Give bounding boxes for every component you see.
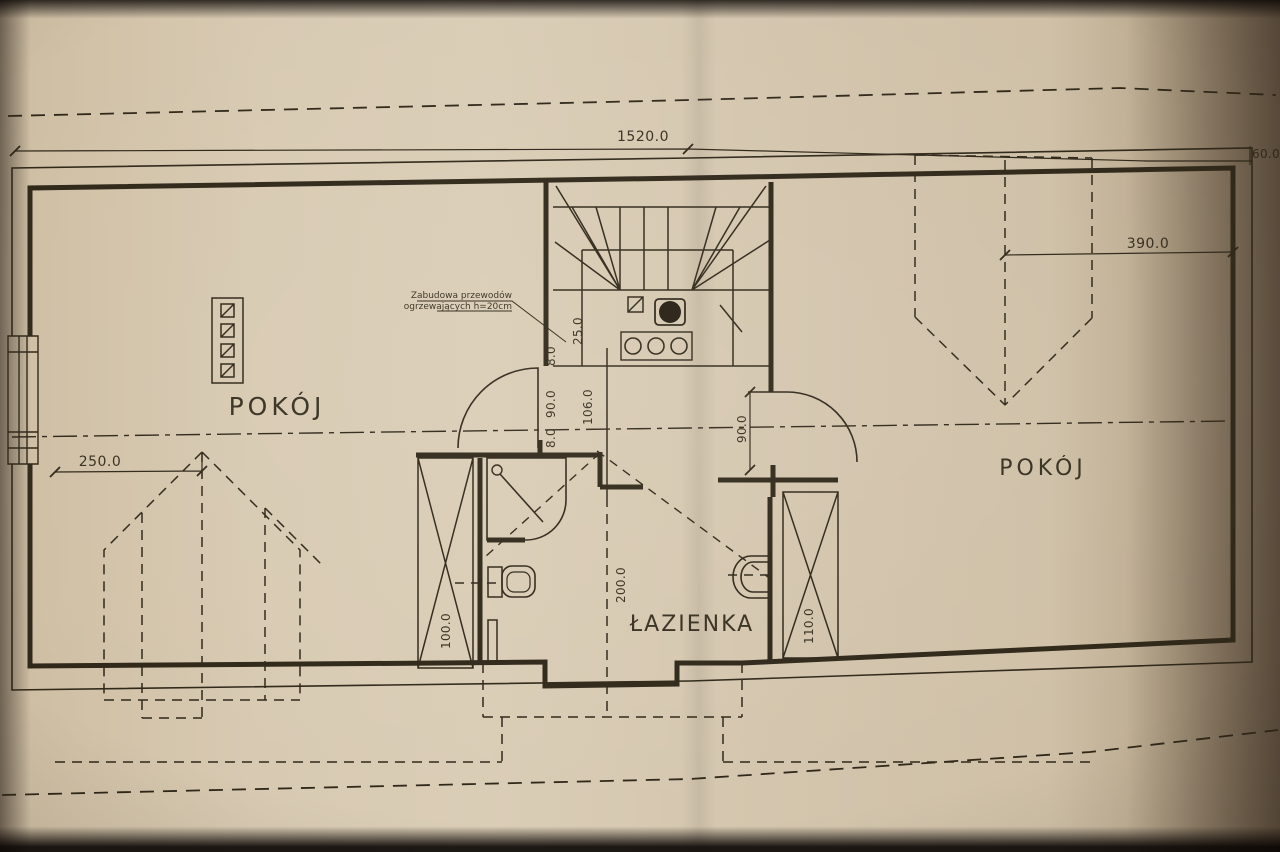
wall-inner-face — [30, 168, 1233, 686]
flue-filled-circle-icon — [659, 301, 681, 323]
dim-stair-recess: 25.0 — [571, 317, 585, 345]
vent-circle-icon — [648, 338, 664, 354]
door-left: 8.0 90.0 8.0 25.0 106.0 — [458, 317, 595, 448]
lower-projection-dashed — [55, 497, 1095, 762]
dim-dormer-left: 250.0 — [79, 454, 122, 470]
toilet — [488, 566, 535, 597]
dimension-line-dormer-left — [55, 452, 202, 476]
toilet-tank — [488, 567, 502, 597]
dimension-top: 1520.0 60.0 — [10, 129, 1280, 165]
dim-left-duct: 100.0 — [439, 613, 453, 649]
dim-door-right: 90.0 — [735, 415, 749, 443]
vent-circle-icon — [671, 338, 687, 354]
floor-plan-drawing: Zabudowa przewodów ogrzewających h=20cm … — [0, 0, 1280, 852]
door-left-swing — [458, 368, 538, 448]
wall-outer-face — [12, 148, 1252, 690]
flue-square-icon — [628, 297, 643, 312]
bathroom-walls — [416, 452, 838, 663]
floor-plan-photo: Zabudowa przewodów ogrzewających h=20cm … — [0, 0, 1280, 852]
dim-dormer-right: 390.0 — [1127, 236, 1170, 252]
room-left: POKÓJ 250.0 — [50, 298, 325, 718]
dormer-right-projection — [915, 155, 1092, 405]
room-right-label: POKÓJ — [999, 455, 1087, 481]
radiator-symbol-icon — [212, 298, 243, 383]
ridge-centerline — [12, 421, 1233, 437]
dim-bathroom-length: 200.0 — [614, 567, 628, 603]
shower-tray — [487, 458, 566, 540]
vent-box — [621, 332, 692, 360]
dormer-left-projection — [104, 452, 323, 718]
dim-right-duct: 110.0 — [802, 608, 816, 644]
room-right: 390.0 POKÓJ — [915, 155, 1238, 481]
dimension-line-dormer-right — [1005, 252, 1233, 255]
dim-overall-width: 1520.0 — [617, 129, 669, 145]
exterior-walls — [8, 148, 1252, 690]
door-right: 90.0 — [735, 387, 857, 475]
washbasin — [733, 556, 770, 598]
bathroom-label: ŁAZIENKA — [629, 612, 754, 637]
dim-jamb-upper: 8.0 — [544, 346, 558, 366]
dim-jamb-lower: 8.0 — [544, 428, 558, 448]
bathroom-radiator — [488, 620, 497, 662]
toilet-bowl-inner — [507, 572, 530, 592]
chimney-block — [621, 297, 692, 360]
annotation-line1: Zabudowa przewodów — [411, 290, 512, 301]
annotation-line2: ogrzewających h=20cm — [404, 302, 512, 312]
annotation-note: Zabudowa przewodów ogrzewających h=20cm — [404, 290, 566, 342]
stair-treads — [553, 186, 770, 497]
vent-circle-icon — [625, 338, 641, 354]
roof-outline-dashed-line — [2, 88, 1278, 795]
shower-drain-icon — [492, 465, 502, 475]
room-left-label: POKÓJ — [229, 391, 326, 421]
dim-door-left: 90.0 — [544, 390, 558, 418]
roof-outline — [2, 88, 1278, 795]
bathroom: ŁAZIENKA 100.0 200.0 110.0 — [416, 451, 838, 668]
dim-passage: 106.0 — [581, 389, 595, 425]
dim-right-edge: 60.0 — [1252, 147, 1280, 161]
window-left-wall — [8, 336, 38, 464]
dimension-line-top — [15, 146, 1252, 165]
